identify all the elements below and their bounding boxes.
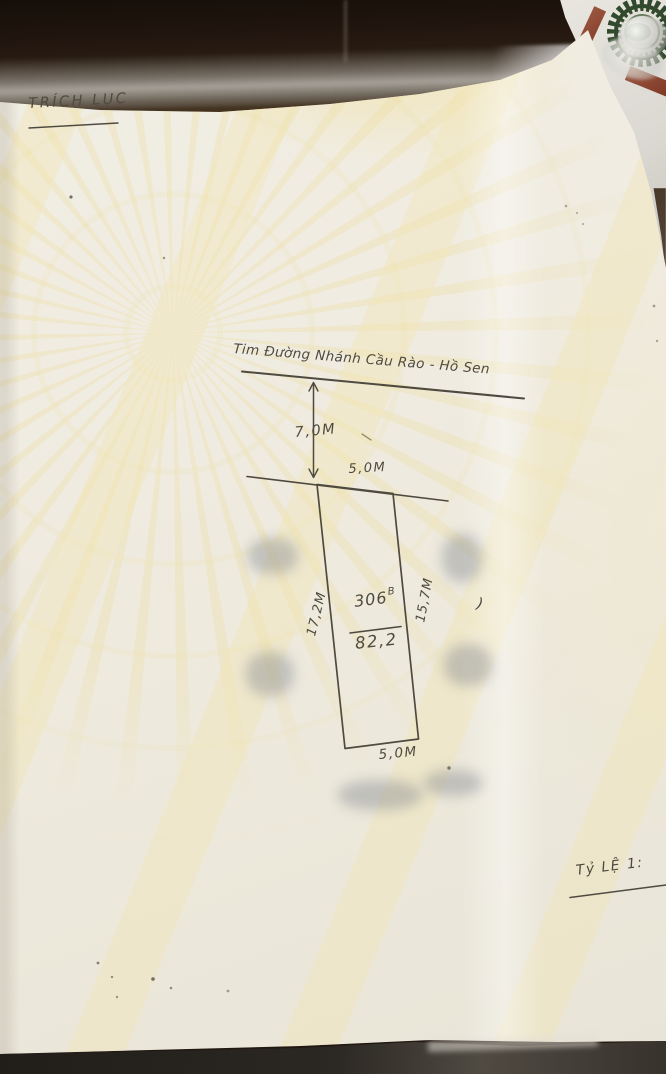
dim-back-width: 5,0M — [378, 744, 418, 763]
redaction-blur — [338, 780, 422, 810]
dim-front-width: 5,0M — [348, 460, 387, 477]
document-photo: TRÍCH LỤC Tim Đường Nhánh Cầu Rào - Hồ S… — [0, 0, 666, 1074]
scale-underline — [570, 885, 666, 898]
parcel-number-value: 306 — [353, 588, 389, 611]
stray-tick — [362, 434, 371, 440]
redaction-blur — [424, 770, 482, 796]
redaction-blur — [248, 538, 298, 574]
redaction-blur — [246, 652, 294, 696]
redaction-blur — [442, 534, 482, 582]
redaction-blur — [444, 644, 492, 686]
title-underline — [29, 123, 118, 128]
plot-outline — [317, 485, 419, 749]
plot-sketch-lines — [0, 0, 666, 1074]
